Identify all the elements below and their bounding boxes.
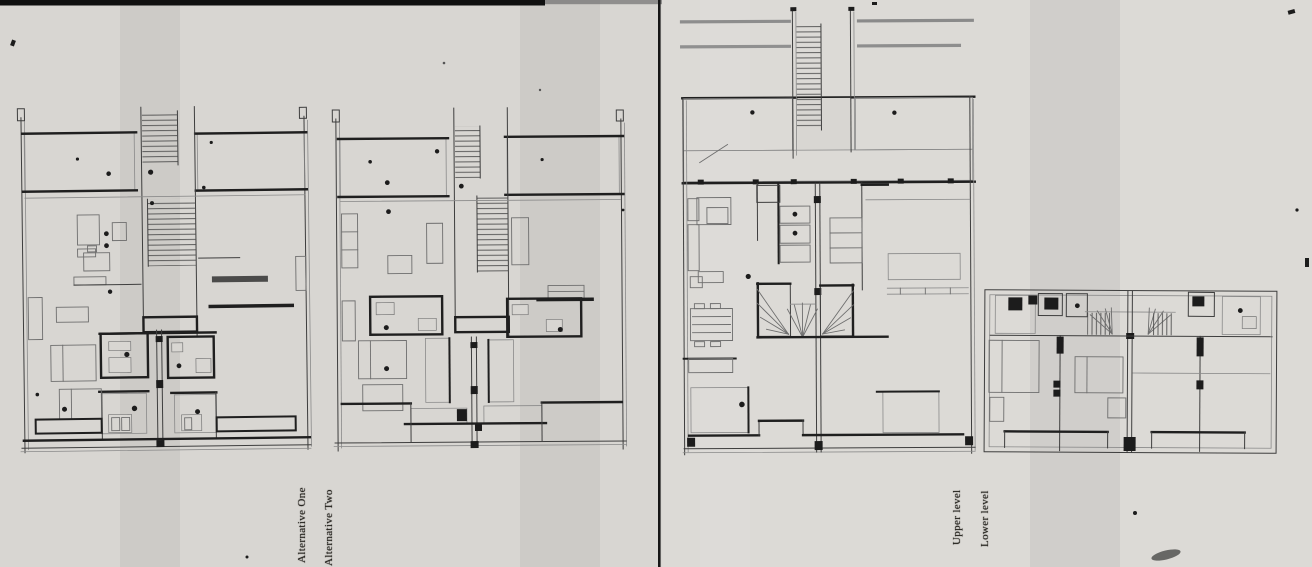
label-upper-level: Upper level (951, 490, 963, 545)
bath-strips (425, 338, 513, 403)
balcony-grid-right (195, 132, 307, 190)
balcony-grid-left (338, 138, 448, 197)
sheet-divider (658, 0, 661, 567)
label-alternative-one: Alternative One (296, 487, 308, 563)
label-alternative-two: Alternative Two (323, 489, 335, 566)
stair-core (454, 108, 509, 336)
bedroom-left (358, 341, 406, 411)
bedroom-left (34, 307, 101, 420)
balcony-grid-left (22, 132, 137, 191)
party-wall (470, 337, 479, 448)
label-lower-level: Lower level (979, 490, 991, 547)
floorplan-drawing (0, 0, 1312, 567)
scanned-floorplan-sheet: Alternative One Alternative Two Upper le… (0, 0, 1312, 567)
